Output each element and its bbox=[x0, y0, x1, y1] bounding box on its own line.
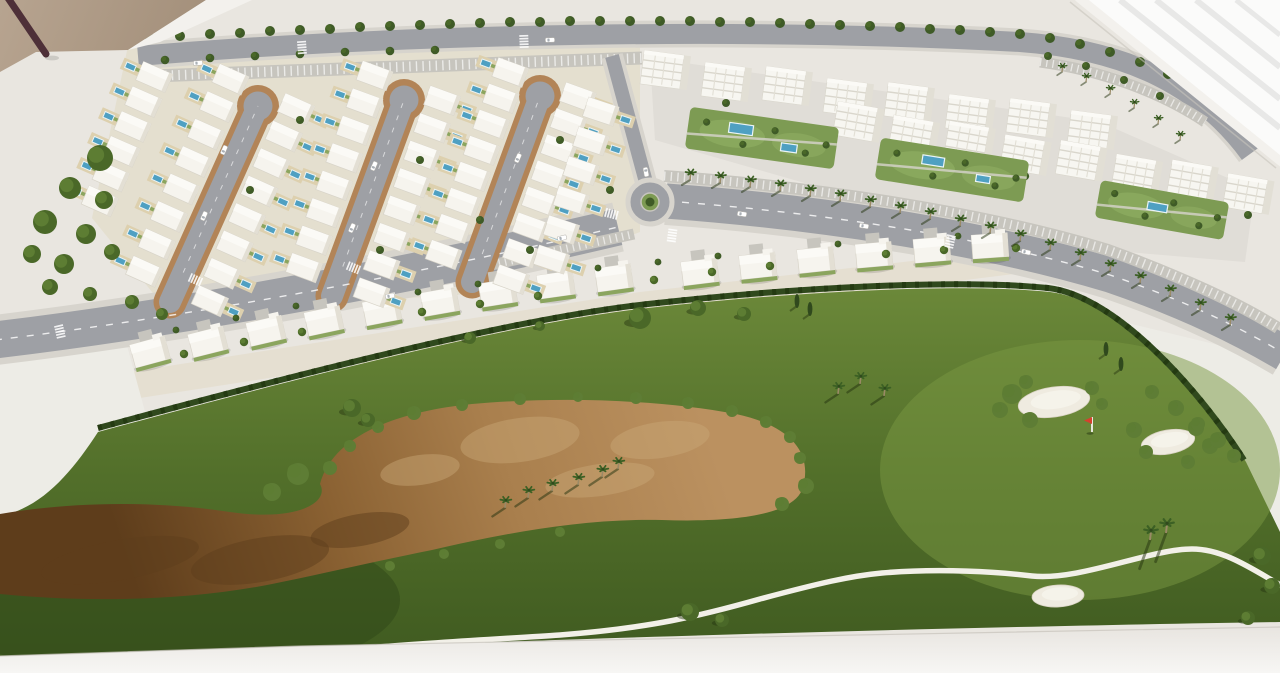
model-car bbox=[193, 60, 202, 65]
palm-crown bbox=[838, 385, 841, 388]
street-tree-highlight bbox=[293, 303, 297, 307]
street-tree-highlight bbox=[251, 52, 256, 57]
palm-crown bbox=[900, 204, 902, 206]
street-tree-highlight bbox=[206, 54, 211, 59]
bush-highlight bbox=[1168, 401, 1178, 411]
palm-crown bbox=[780, 182, 782, 184]
palm-crown bbox=[960, 217, 962, 219]
palm-crown bbox=[552, 482, 555, 485]
stick-shadow bbox=[45, 56, 59, 61]
street-tree-highlight bbox=[1106, 48, 1112, 54]
bush-highlight bbox=[682, 398, 689, 405]
palm-crown bbox=[1200, 301, 1202, 303]
palm-crown bbox=[1086, 75, 1088, 77]
bush-highlight bbox=[514, 394, 521, 401]
street-tree-highlight bbox=[566, 17, 572, 23]
street-tree-highlight bbox=[446, 20, 452, 26]
row-tree-highlight bbox=[766, 262, 771, 267]
bush-highlight bbox=[784, 432, 791, 439]
street-tree-highlight bbox=[1245, 212, 1249, 216]
palm-crown bbox=[602, 468, 605, 471]
street-tree-highlight bbox=[776, 19, 782, 25]
palm-crown bbox=[1110, 87, 1112, 89]
street-tree-highlight bbox=[536, 18, 542, 24]
street-tree-highlight bbox=[386, 22, 392, 28]
golf-tree-highlight bbox=[344, 400, 355, 411]
street-tree-highlight bbox=[715, 253, 719, 257]
palm-crown bbox=[1050, 241, 1052, 243]
bush-highlight bbox=[630, 393, 637, 400]
apartment-block-row-a bbox=[884, 82, 935, 122]
palm-crown bbox=[528, 489, 531, 492]
bush-highlight bbox=[1003, 385, 1015, 397]
cypress-tree bbox=[1119, 357, 1124, 371]
palm-crown bbox=[1062, 65, 1064, 67]
row-tree-highlight bbox=[240, 338, 245, 343]
row-tree-highlight bbox=[418, 308, 423, 313]
street-tree-highlight bbox=[236, 29, 242, 35]
car-body bbox=[737, 211, 747, 217]
golf-tree-highlight bbox=[535, 322, 541, 328]
street-tree-highlight bbox=[1076, 40, 1082, 46]
row-tree-highlight bbox=[882, 250, 887, 255]
street-tree-highlight bbox=[173, 327, 177, 331]
crosswalk-stripe bbox=[519, 40, 528, 42]
bush-highlight bbox=[1022, 413, 1032, 423]
palm-crown bbox=[618, 460, 621, 463]
street-tree-highlight bbox=[716, 18, 722, 24]
street-tree-highlight bbox=[527, 247, 531, 251]
car-body bbox=[193, 60, 202, 65]
street-tree-highlight bbox=[206, 30, 212, 36]
roundabout-bush bbox=[646, 198, 655, 207]
palm-crown bbox=[578, 476, 581, 479]
bush-highlight bbox=[263, 484, 274, 495]
row-tree-highlight bbox=[298, 328, 303, 333]
edge-tree-clump-highlight bbox=[55, 255, 67, 267]
bush-highlight bbox=[775, 498, 783, 506]
crosswalk-stripe bbox=[520, 43, 529, 45]
palm-crown bbox=[1134, 101, 1136, 103]
row-tree-highlight bbox=[476, 300, 481, 305]
bush-highlight bbox=[407, 407, 415, 415]
palm-crown bbox=[1180, 133, 1182, 135]
palm-crown bbox=[870, 198, 872, 200]
apartment-block-row-a bbox=[1006, 98, 1057, 138]
palm-crown bbox=[930, 210, 932, 212]
bush-highlight bbox=[1019, 376, 1027, 384]
palm-crown bbox=[750, 178, 752, 180]
golf-tree-highlight bbox=[682, 604, 693, 615]
street-tree-highlight bbox=[477, 217, 481, 221]
crosswalk-stripe bbox=[520, 46, 529, 48]
edge-tree-clump-highlight bbox=[43, 280, 53, 290]
row-tree-highlight bbox=[650, 276, 655, 281]
golf-tree-highlight bbox=[691, 301, 701, 311]
street-tree-highlight bbox=[161, 56, 166, 61]
street-tree-highlight bbox=[956, 26, 962, 32]
roundabout bbox=[628, 180, 672, 224]
car-windshield bbox=[547, 39, 549, 42]
apartment-block-row-a bbox=[701, 62, 752, 102]
bush-highlight bbox=[1227, 450, 1235, 458]
apartment-block-row-a bbox=[640, 50, 691, 90]
street-tree-highlight bbox=[626, 17, 632, 23]
street-tree-highlight bbox=[386, 47, 391, 52]
street-tree-highlight bbox=[746, 18, 752, 24]
golf-tree-highlight bbox=[630, 308, 644, 322]
street-tree-highlight bbox=[356, 23, 362, 29]
bush-highlight bbox=[1126, 423, 1136, 433]
bush-highlight bbox=[992, 403, 1002, 413]
flag-shadow bbox=[1087, 432, 1094, 434]
model-car bbox=[545, 38, 554, 43]
golf-tree-highlight bbox=[738, 308, 747, 317]
street-tree-highlight bbox=[416, 21, 422, 27]
street-tree-highlight bbox=[836, 21, 842, 27]
street-tree-highlight bbox=[506, 18, 512, 24]
palm-crown bbox=[1149, 529, 1152, 532]
model-car bbox=[737, 211, 747, 217]
bush-highlight bbox=[798, 479, 808, 489]
car-body bbox=[545, 38, 554, 43]
street-tree-highlight bbox=[806, 20, 812, 26]
palm-crown bbox=[1170, 287, 1172, 289]
street-tree-highlight bbox=[266, 27, 272, 33]
car-windshield bbox=[739, 212, 742, 215]
palm-crown bbox=[1110, 262, 1112, 264]
street-tree-highlight bbox=[926, 25, 932, 31]
apartment-block-row-a bbox=[762, 66, 813, 106]
street-tree-highlight bbox=[233, 315, 237, 319]
golf-tree-highlight bbox=[1242, 612, 1251, 621]
palm-crown bbox=[1140, 274, 1142, 276]
golf-tree-highlight bbox=[464, 333, 471, 340]
bush-highlight bbox=[1145, 386, 1153, 394]
street-tree-highlight bbox=[1046, 34, 1052, 40]
golf-tree-highlight bbox=[1254, 548, 1265, 559]
model-photo bbox=[0, 0, 1280, 673]
palm-crown bbox=[1158, 117, 1160, 119]
edge-tree-clump-highlight bbox=[77, 225, 89, 237]
street-tree-highlight bbox=[655, 259, 659, 263]
bush-highlight bbox=[344, 441, 351, 448]
golf-tree-highlight bbox=[716, 614, 725, 623]
street-tree-highlight bbox=[607, 187, 611, 191]
car-windshield bbox=[195, 62, 197, 65]
bush-highlight bbox=[1139, 446, 1147, 454]
palm-crown bbox=[1080, 251, 1082, 253]
garden-pool bbox=[780, 143, 797, 153]
bush-highlight bbox=[385, 562, 391, 568]
street-tree-highlight bbox=[686, 17, 692, 23]
street-tree-highlight bbox=[656, 17, 662, 23]
edge-tree-clump-highlight bbox=[24, 246, 35, 257]
palm-crown bbox=[720, 174, 722, 176]
palm-crown bbox=[810, 187, 812, 189]
golf-light-patch bbox=[880, 340, 1280, 600]
palm-crown bbox=[840, 192, 842, 194]
street-tree-highlight bbox=[1157, 93, 1161, 97]
crosswalk-stripe bbox=[519, 35, 528, 37]
palm-crown bbox=[690, 171, 692, 173]
row-tree-highlight bbox=[708, 268, 713, 273]
edge-tree-clump-highlight bbox=[96, 192, 107, 203]
palm-crown bbox=[1165, 522, 1168, 525]
photo-stage bbox=[0, 0, 1280, 673]
bush-highlight bbox=[1096, 399, 1103, 406]
row-tree-highlight bbox=[940, 246, 945, 251]
bush-highlight bbox=[1181, 456, 1189, 464]
bush-highlight bbox=[726, 406, 733, 413]
street-tree-highlight bbox=[896, 23, 902, 29]
street-tree-highlight bbox=[835, 241, 839, 245]
golf-tree-highlight bbox=[1265, 579, 1275, 589]
edge-tree-clump-highlight bbox=[84, 288, 93, 297]
street-tree-highlight bbox=[1045, 53, 1049, 57]
bush-highlight bbox=[760, 417, 767, 424]
bush-highlight bbox=[288, 464, 301, 477]
street-tree-highlight bbox=[1083, 63, 1087, 67]
palm-crown bbox=[990, 224, 992, 226]
edge-tree-clump-highlight bbox=[156, 309, 163, 316]
street-tree-highlight bbox=[476, 19, 482, 25]
street-tree-highlight bbox=[431, 46, 436, 51]
crosswalk-stripe bbox=[519, 38, 528, 40]
street-tree-highlight bbox=[1016, 30, 1022, 36]
palm-crown bbox=[884, 387, 887, 390]
street-tree-highlight bbox=[723, 100, 727, 104]
street-tree-highlight bbox=[326, 25, 332, 31]
bush-highlight bbox=[573, 393, 579, 399]
street-tree-highlight bbox=[247, 187, 251, 191]
edge-tree-clump-highlight bbox=[126, 296, 135, 305]
palm-crown bbox=[1230, 316, 1232, 318]
bush-highlight bbox=[555, 528, 561, 534]
palm-crown bbox=[1020, 232, 1022, 234]
edge-tree-clump-highlight bbox=[105, 245, 115, 255]
garden-pool bbox=[976, 174, 991, 183]
street-tree-highlight bbox=[866, 22, 872, 28]
bush-highlight bbox=[456, 400, 463, 407]
edge-tree-clump-highlight bbox=[60, 178, 74, 192]
bush-highlight bbox=[1210, 433, 1220, 443]
street-tree-highlight bbox=[415, 289, 419, 293]
street-tree-highlight bbox=[557, 137, 561, 141]
golf-tree-highlight bbox=[362, 414, 371, 423]
street-tree-highlight bbox=[341, 48, 346, 53]
cypress-tree bbox=[808, 302, 813, 316]
palm-crown bbox=[505, 499, 508, 502]
street-tree-highlight bbox=[296, 26, 302, 32]
street-tree-highlight bbox=[595, 265, 599, 269]
bush-highlight bbox=[323, 462, 331, 470]
bush-highlight bbox=[1085, 382, 1093, 390]
bush-highlight bbox=[439, 550, 445, 556]
street-tree-highlight bbox=[297, 117, 301, 121]
bush-highlight bbox=[495, 540, 501, 546]
street-tree-highlight bbox=[1121, 77, 1125, 81]
edge-tree-clump-highlight bbox=[34, 212, 49, 227]
row-tree-highlight bbox=[534, 292, 539, 297]
edge-tree-clump-highlight bbox=[88, 147, 104, 163]
cypress-tree bbox=[795, 294, 800, 308]
cypress-tree bbox=[1104, 342, 1109, 356]
street-tree-highlight bbox=[596, 17, 602, 23]
street-tree-highlight bbox=[986, 28, 992, 34]
street-tree-highlight bbox=[417, 157, 421, 161]
palm-crown bbox=[860, 375, 863, 378]
bush-highlight bbox=[794, 453, 801, 460]
bush-highlight bbox=[1191, 418, 1199, 426]
street-tree-highlight bbox=[475, 281, 479, 285]
row-tree-highlight bbox=[180, 350, 185, 355]
street-tree-highlight bbox=[377, 247, 381, 251]
